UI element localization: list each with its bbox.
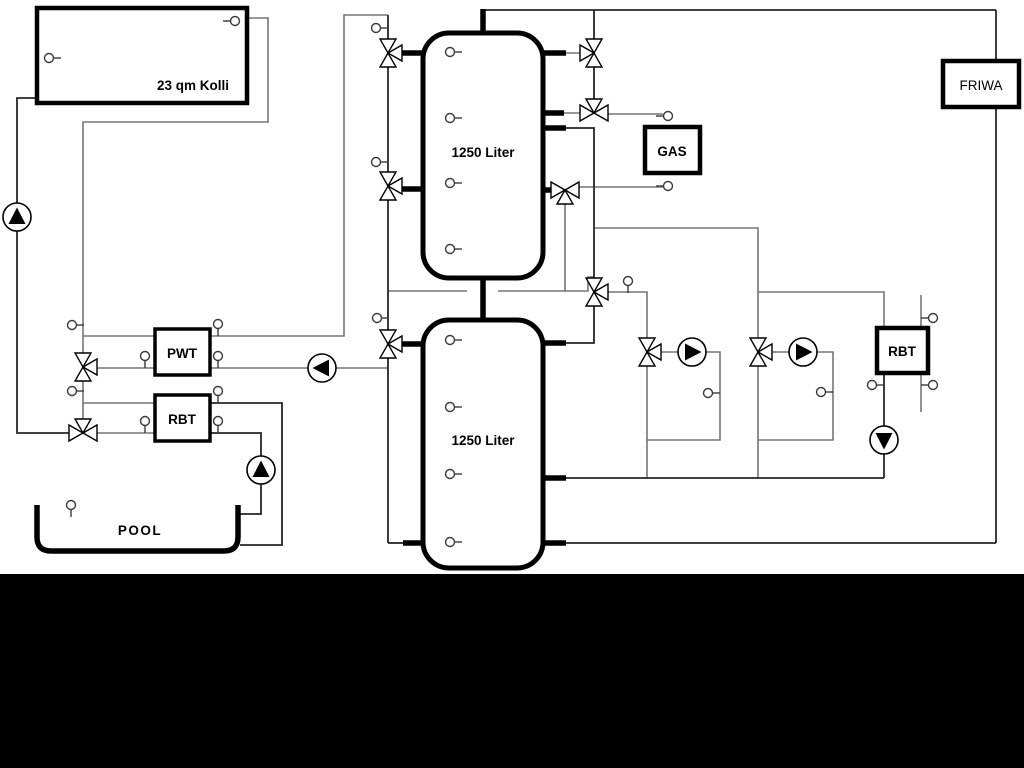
pwt-heat-exchanger[interactable]: PWT xyxy=(155,329,210,375)
hydraulic-schematic: 23 qm Kolli 1250 Liter 1250 Liter PWT RB… xyxy=(0,0,1024,768)
pipe-mixer-out xyxy=(608,292,647,338)
temperature-sensor-riser-top-icon[interactable] xyxy=(921,314,938,323)
temperature-sensor-valve3-icon[interactable] xyxy=(373,314,390,323)
three-way-valve-tank1-top-right[interactable] xyxy=(580,39,602,67)
three-way-valve-tank2-top-left[interactable] xyxy=(380,330,402,358)
temperature-sensor-distribution-icon[interactable] xyxy=(624,277,633,294)
pool[interactable]: POOL xyxy=(37,505,238,551)
pipe-heating-loop-2 xyxy=(758,352,833,478)
temperature-sensor-loop2-icon[interactable] xyxy=(817,388,834,397)
temperature-sensor-rbt-top-icon[interactable] xyxy=(214,387,223,404)
temperature-sensor-riser-bottom-icon[interactable] xyxy=(921,381,938,390)
pipe-tank2-return xyxy=(566,373,884,478)
temperature-sensor-pwt-top-out-icon[interactable] xyxy=(214,320,223,337)
three-way-valve-gas-supply[interactable] xyxy=(580,99,608,121)
temperature-sensor-gas-top-icon[interactable] xyxy=(656,112,673,121)
temperature-sensor-solar-flow-icon[interactable] xyxy=(68,321,85,330)
three-way-valve-pwt[interactable] xyxy=(75,353,97,381)
three-way-valve-gas-return[interactable] xyxy=(551,182,579,204)
pipe-solar-flow xyxy=(17,98,69,433)
temperature-sensor-rbt-right-icon[interactable] xyxy=(868,381,885,390)
temperature-sensor-gas-bottom-icon[interactable] xyxy=(656,182,673,191)
temperature-sensor-pool-icon[interactable] xyxy=(67,501,76,518)
friwa-label: FRIWA xyxy=(960,78,1003,93)
temperature-sensor-solar-return-icon[interactable] xyxy=(68,387,85,396)
rbt-right-heat-exchanger[interactable]: RBT xyxy=(877,328,928,373)
pump-solar[interactable] xyxy=(3,203,31,231)
temperature-sensor-pwt-in-icon[interactable] xyxy=(141,352,150,369)
three-way-valve-distribution[interactable] xyxy=(586,278,608,306)
gas-boiler[interactable]: GAS xyxy=(645,127,700,173)
rbt-left-label: RBT xyxy=(168,412,196,427)
solar-collector[interactable]: 23 qm Kolli xyxy=(37,8,247,103)
pump-pool[interactable] xyxy=(247,456,275,484)
buffer-tank-2-label: 1250 Liter xyxy=(451,433,515,448)
three-way-valve-tank1-bottom-left[interactable] xyxy=(380,172,402,200)
three-way-valve-rbt-left[interactable] xyxy=(69,419,97,441)
pipe-to-rbt-right xyxy=(758,292,884,328)
three-way-valve-tank1-top-left[interactable] xyxy=(380,39,402,67)
buffer-tank-1-label: 1250 Liter xyxy=(451,145,515,160)
temperature-sensor-rbt-in-icon[interactable] xyxy=(141,417,150,434)
bottom-black-bar xyxy=(0,574,1024,768)
temperature-sensor-pwt-bottom-out-icon[interactable] xyxy=(214,352,223,369)
three-way-valve-circuit-2[interactable] xyxy=(750,338,772,366)
rbt-right-label: RBT xyxy=(888,344,916,359)
temperature-sensor-valve1-icon[interactable] xyxy=(372,24,389,33)
pump-rbt-right[interactable] xyxy=(870,426,898,454)
buffer-tank-2[interactable]: 1250 Liter xyxy=(423,320,543,568)
pipe-heating-loop-1 xyxy=(647,352,720,478)
pipe-tank1-right-links xyxy=(564,53,580,113)
solar-collector-label: 23 qm Kolli xyxy=(157,78,229,93)
pump-pwt[interactable] xyxy=(308,354,336,382)
temperature-sensor-loop1-icon[interactable] xyxy=(704,389,721,398)
temperature-sensor-rbt-out-icon[interactable] xyxy=(214,417,223,434)
pump-circuit-1[interactable] xyxy=(678,338,706,366)
rbt-left-heat-exchanger[interactable]: RBT xyxy=(155,395,210,441)
buffer-tank-1[interactable]: 1250 Liter xyxy=(423,33,543,278)
pump-circuit-2[interactable] xyxy=(789,338,817,366)
pipe-upper-branch xyxy=(594,228,758,338)
three-way-valve-circuit-1[interactable] xyxy=(639,338,661,366)
temperature-sensor-valve2-icon[interactable] xyxy=(372,158,389,167)
pwt-label: PWT xyxy=(167,346,198,361)
gas-label: GAS xyxy=(657,144,686,159)
friwa-station[interactable]: FRIWA xyxy=(943,61,1019,107)
pool-label: POOL xyxy=(118,523,162,538)
